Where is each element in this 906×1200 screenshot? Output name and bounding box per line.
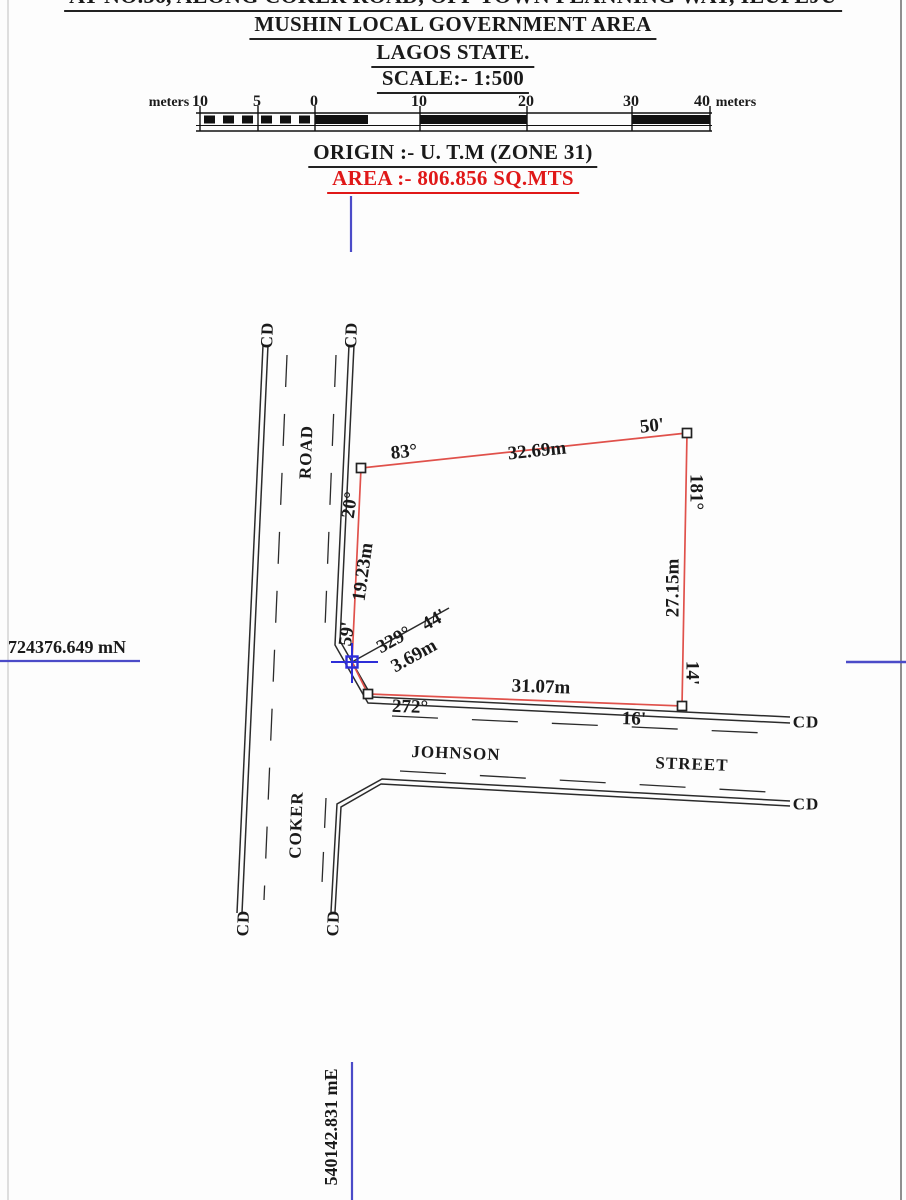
cd-label-coker-bottom-right: CD: [324, 909, 342, 936]
scale-tick-40: 40: [694, 94, 710, 110]
title-line-3: LAGOS STATE.: [371, 40, 534, 68]
bearing-south-min: 16': [622, 709, 647, 729]
scale-bar-fill-0-5: [315, 115, 368, 124]
johnson-south-coker-inner-line: [335, 784, 790, 912]
beacon-top-left: [357, 464, 366, 473]
scale-bar-fill-10-20: [420, 115, 527, 124]
distance-east: 27.15m: [664, 559, 683, 618]
cd-label-johnson-north: CD: [793, 714, 820, 731]
scale-tick-5: 5: [253, 94, 261, 110]
coker-left-inner-line: [242, 345, 268, 913]
coker-left-outer-line: [237, 345, 263, 913]
coker-dashed-line-right-lower: [321, 798, 326, 905]
cd-label-coker-bottom-left: CD: [234, 909, 252, 936]
origin-text: ORIGIN :- U. T.M (ZONE 31): [308, 140, 597, 168]
scale-tick-30: 30: [623, 94, 639, 110]
survey-plan-page: AT NO.36, ALONG COKER ROAD, OFF TOWN PLA…: [0, 0, 906, 1200]
scale-bar-fill-30-40: [632, 115, 710, 124]
bearing-east-deg: 181°: [687, 474, 706, 510]
coker-dashed-line-left: [264, 355, 287, 900]
title-line-2: MUSHIN LOCAL GOVERNMENT AREA: [249, 12, 656, 40]
johnson-south-coker-outer-line: [331, 779, 790, 912]
scale-tick-10l: 10: [192, 94, 208, 110]
bearing-west-deg: 20°: [339, 491, 362, 520]
johnson-dashed-line-north: [392, 716, 786, 734]
distance-south: 31.07m: [511, 676, 570, 697]
scale-tick-0: 0: [310, 94, 318, 110]
easting-coordinate-label: 540142.831 mE: [322, 1069, 340, 1186]
parcel: [331, 429, 692, 711]
beacon-top-right: [683, 429, 692, 438]
area-text: AREA :- 806.856 SQ.MTS: [327, 166, 579, 194]
scale-text: SCALE:- 1:500: [377, 66, 529, 94]
bearing-east-min: 14': [683, 661, 702, 685]
scale-unit-right: meters: [716, 96, 756, 110]
bearing-south-deg: 272°: [392, 697, 429, 717]
road-name-street-word: STREET: [655, 754, 729, 774]
cd-label-johnson-south: CD: [793, 796, 820, 813]
road-name-coker-road-word: ROAD: [297, 425, 316, 480]
beacon-bottom-left: [364, 690, 373, 699]
coker-dashed-line-right-upper: [325, 355, 336, 628]
road-name-johnson-word: JOHNSON: [411, 743, 501, 763]
cd-label-coker-top-left: CD: [258, 321, 276, 348]
bearing-north-min: 50': [639, 415, 665, 436]
title-line-1: AT NO.36, ALONG COKER ROAD, OFF TOWN PLA…: [64, 0, 842, 12]
scale-tick-10r: 10: [411, 94, 427, 110]
bearing-west-min: 59': [336, 621, 358, 648]
roads: [237, 345, 790, 913]
scale-tick-20: 20: [518, 94, 534, 110]
bearing-north-deg: 83°: [390, 441, 418, 463]
road-name-coker-word: COKER: [286, 791, 305, 859]
cd-label-coker-top-right: CD: [342, 321, 360, 348]
scale-unit-left: meters: [149, 96, 189, 110]
beacon-bottom-right: [678, 702, 687, 711]
northing-coordinate-label: 724376.649 mN: [8, 638, 126, 656]
